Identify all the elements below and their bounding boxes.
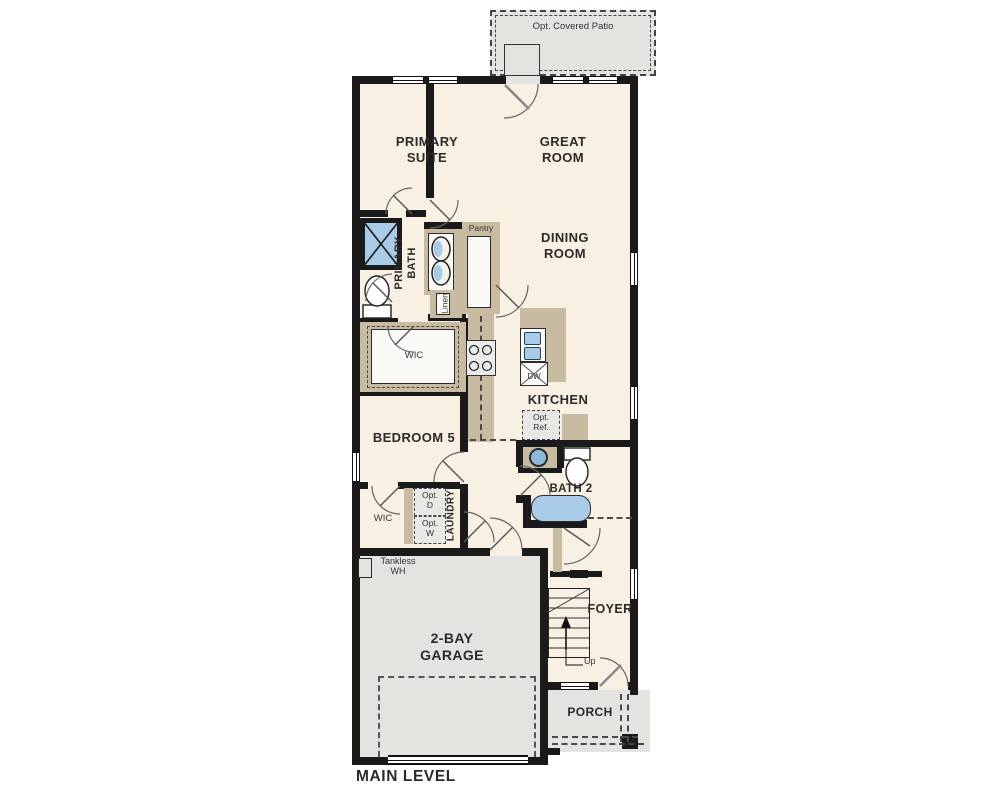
great-room-label: GREAT ROOM xyxy=(518,134,608,168)
tankless-line1: Tankless xyxy=(380,556,415,566)
opt-ref-line1: Opt. xyxy=(533,412,549,422)
opt-dryer-label: Opt. D xyxy=(414,491,446,513)
wall xyxy=(406,210,426,217)
wall xyxy=(570,570,588,578)
opt-washer-line1: Opt. xyxy=(422,518,438,528)
wall xyxy=(360,210,388,217)
window xyxy=(352,452,360,482)
wall xyxy=(460,484,468,552)
great-room-line1: GREAT xyxy=(540,134,587,149)
dining-room-line2: ROOM xyxy=(544,246,586,261)
porch-dash xyxy=(552,736,638,738)
wic-bedroom5-label: WIC xyxy=(364,514,402,526)
sink-basin xyxy=(524,332,541,345)
pantry-label: Pantry xyxy=(462,224,500,234)
patio-entry-step xyxy=(504,44,540,76)
dining-room-label: DINING ROOM xyxy=(520,230,610,264)
tankless-water-heater xyxy=(358,558,372,578)
vanity-counter xyxy=(428,233,454,291)
primary-bath-label: PRIMARY BATH xyxy=(393,221,423,305)
wall xyxy=(352,757,388,765)
primary-bath-line2: BATH xyxy=(406,247,418,278)
wall xyxy=(548,682,560,690)
primary-suite-label: PRIMARY SUITE xyxy=(382,134,472,168)
opt-ref-label: Opt. Ref. xyxy=(522,413,560,437)
garage-line1: 2-BAY xyxy=(431,630,474,646)
patio-door-gap xyxy=(506,76,540,84)
patio-label: Opt. Covered Patio xyxy=(490,22,656,33)
opt-washer-label: Opt. W xyxy=(414,519,446,541)
window xyxy=(392,76,424,84)
wall xyxy=(590,682,598,690)
garage-label: 2-BAY GARAGE xyxy=(400,630,504,666)
window xyxy=(428,76,458,84)
primary-suite-line2: SUITE xyxy=(407,150,447,165)
pantry-interior xyxy=(467,236,491,308)
counter-dash xyxy=(480,316,482,440)
wall xyxy=(540,548,548,765)
linen-label: Linen xyxy=(441,286,452,322)
garage-parking-outline xyxy=(378,676,536,757)
wall xyxy=(352,548,490,556)
great-room-line2: ROOM xyxy=(542,150,584,165)
wall xyxy=(352,482,368,489)
staircase xyxy=(548,588,590,658)
window xyxy=(630,568,638,600)
wall xyxy=(548,748,560,755)
bath2-label: BATH 2 xyxy=(542,482,600,495)
ceiling-break-line xyxy=(588,517,632,519)
ceiling-break-line xyxy=(470,439,516,441)
wall xyxy=(352,76,360,765)
dishwasher-label: DW xyxy=(521,373,547,383)
wall xyxy=(628,682,638,690)
porch-dash xyxy=(627,694,629,742)
wic-primary-label: WIC xyxy=(396,351,432,363)
floor-plan: Opt. Covered Patio xyxy=(0,0,1000,800)
foyer-label: FOYER xyxy=(582,602,638,616)
kitchen-label: KITCHEN xyxy=(522,392,594,406)
dining-room-line1: DINING xyxy=(541,230,589,245)
window xyxy=(630,386,638,420)
opt-dryer-line2: D xyxy=(427,500,433,510)
stairs-up-label: Up xyxy=(584,656,604,667)
opt-washer-line2: W xyxy=(426,528,434,538)
laundry-label: LAUNDRY xyxy=(446,482,459,550)
laundry-cabinet xyxy=(404,488,413,544)
opt-dryer-line1: Opt. xyxy=(422,490,438,500)
sink-basin xyxy=(524,347,541,360)
primary-suite-line1: PRIMARY xyxy=(396,134,458,149)
wall xyxy=(516,440,638,447)
opt-ref-line2: Ref. xyxy=(533,422,549,432)
hall-closet-shelf xyxy=(553,528,562,572)
window xyxy=(552,76,584,84)
porch-label: PORCH xyxy=(558,705,622,718)
tankless-line2: WH xyxy=(391,566,406,576)
kitchen-cabinet xyxy=(562,414,588,440)
wall xyxy=(516,447,523,467)
wall xyxy=(516,495,523,503)
primary-bath-line1: PRIMARY xyxy=(393,236,405,289)
porch-dash xyxy=(552,743,644,745)
window xyxy=(560,682,590,690)
garage-line2: GARAGE xyxy=(420,647,484,663)
bath2-sink xyxy=(529,448,548,467)
wall xyxy=(556,444,564,468)
porch-dash xyxy=(620,694,622,742)
range-cooktop xyxy=(466,340,496,376)
bedroom5-label: BEDROOM 5 xyxy=(366,430,462,445)
tankless-label: Tankless WH xyxy=(372,556,424,578)
window xyxy=(588,76,618,84)
window xyxy=(630,252,638,286)
bathtub xyxy=(531,495,591,522)
page-title: MAIN LEVEL xyxy=(356,768,496,788)
